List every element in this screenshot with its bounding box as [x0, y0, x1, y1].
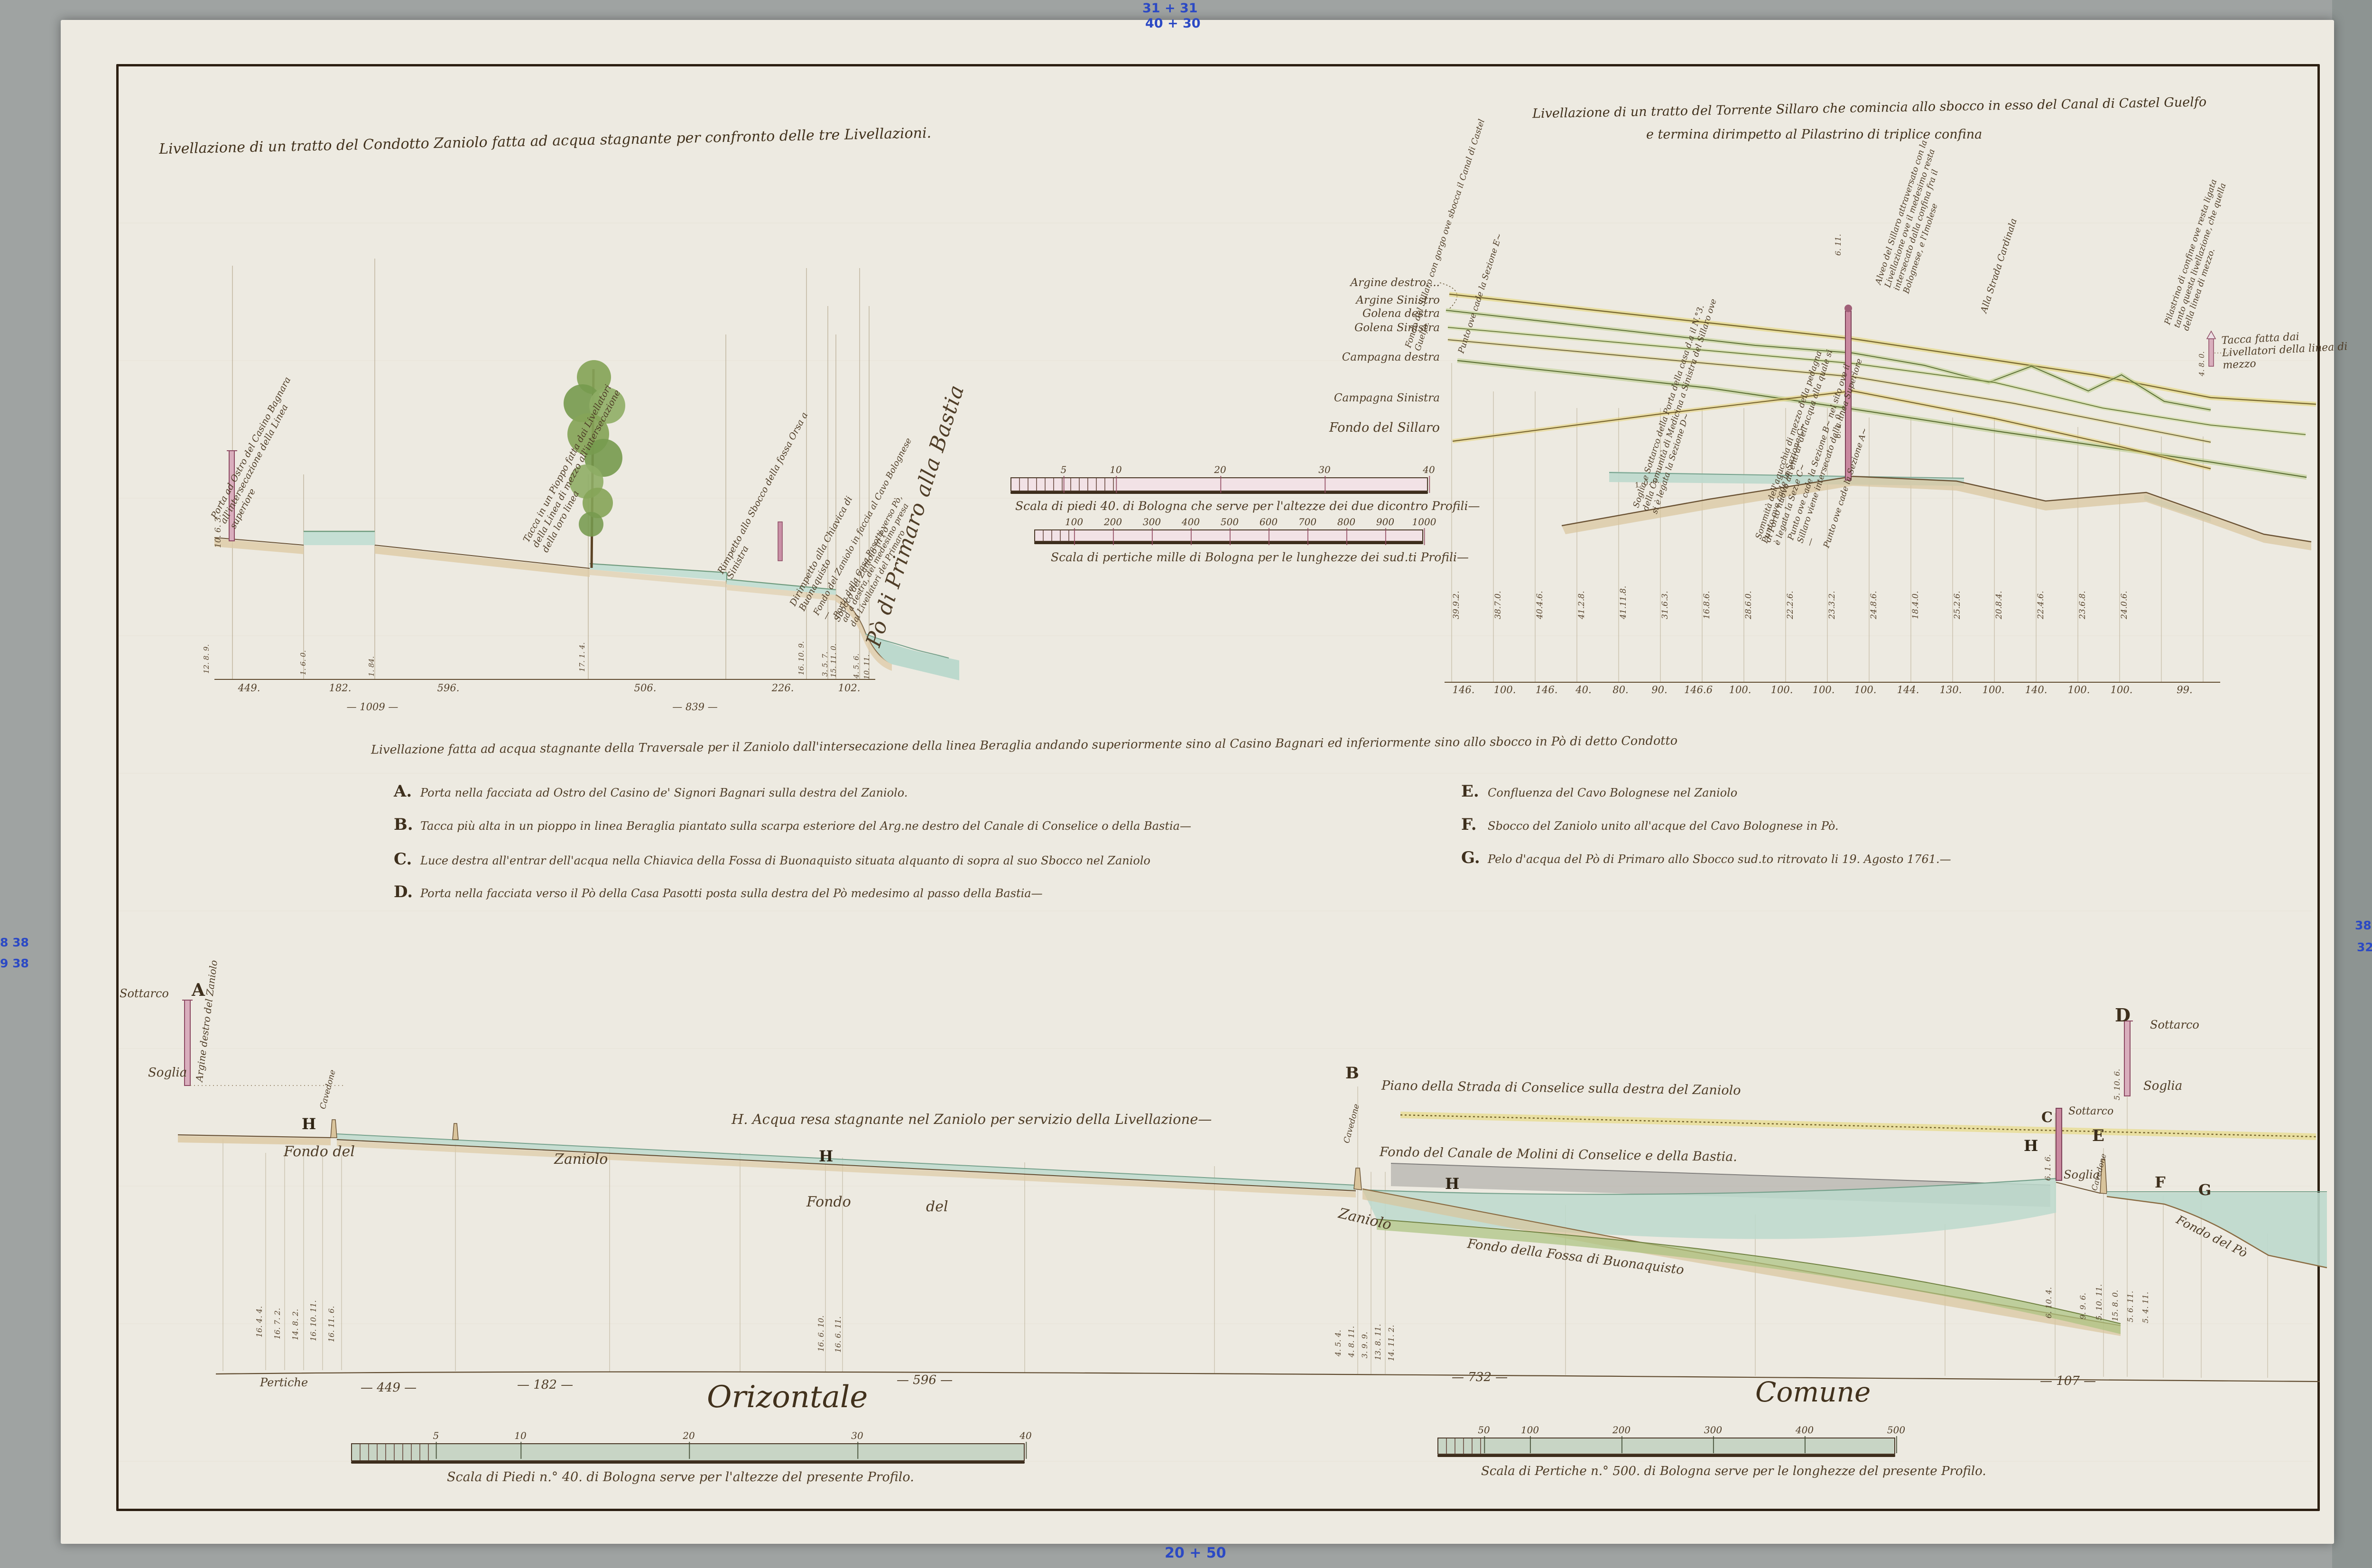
scale-tick: 20 [1214, 464, 1226, 475]
axis-number: 144. [1897, 684, 1919, 696]
scale-pertiche-top-label: Scala di pertiche mille di Bologna per l… [1051, 550, 1469, 565]
scale-tick: 50 [1478, 1424, 1490, 1436]
scale-tick: 40 [1019, 1430, 1031, 1441]
measurement-number: 20.8.4. [1994, 591, 2004, 619]
legend-item-key: D. [394, 882, 420, 901]
scale-tick: 10 [1110, 464, 1121, 475]
measurement-number: 17. 1. 4. [578, 642, 586, 672]
legend-item-key: G. [1461, 848, 1488, 867]
axis-number: 100. [1494, 684, 1516, 696]
tr-profile [1440, 283, 2316, 682]
scale-base-line [1010, 492, 1428, 494]
scale-tick: 800 [1337, 516, 1355, 528]
measurement-number: 15. 8. 0. [2111, 1290, 2120, 1321]
legend-item-text: Tacca più alta in un pioppo in linea Ber… [420, 819, 1191, 833]
measurement-number: 6. 10. 4. [2044, 1287, 2053, 1318]
point-letter-h: H [1445, 1175, 1459, 1193]
axis-number: — 1009 — [347, 701, 398, 713]
measurement-number: 24.8.6. [1869, 591, 1879, 619]
scale-piedi-bottom-label: Scala di Piedi n.° 40. di Bologna serve … [447, 1470, 914, 1485]
measurement-number: 4. 5. 6. [852, 654, 861, 678]
measurement-number: 6. 1. 6. [2043, 1154, 2052, 1181]
scale-tick: 700 [1298, 516, 1316, 528]
blue-mark-left-2: 9 38 [0, 956, 29, 970]
axis-number: 100. [2068, 684, 2090, 696]
scale-tick: 100 [1521, 1424, 1539, 1436]
axis-number: 40. [1575, 684, 1591, 696]
point-letter-g: G [2198, 1181, 2211, 1199]
sottarco-label-c: Sottarco [2068, 1105, 2113, 1118]
point-letter-d: D [2115, 1005, 2131, 1026]
axis-orizontale: Orizontale [707, 1380, 868, 1416]
scale-tick: 100 [1065, 516, 1083, 528]
measurement-number: 41.11.8. [1619, 586, 1628, 619]
axis-number: 146. [1453, 684, 1475, 696]
measurement-number: 16. 4. 4. [255, 1306, 264, 1337]
measurement-number: 5. 4. 11. [2141, 1292, 2150, 1323]
legend-item-key: C. [394, 850, 420, 869]
measurement-number: 3. 9. 9. [1360, 1332, 1369, 1358]
scale-tick: 600 [1260, 516, 1278, 528]
measurement-number: 16. 7. 2. [273, 1308, 282, 1339]
measurement-number: 3. 5. 7. [821, 652, 829, 677]
measurement-number: 4. 8. 0. [2197, 352, 2206, 376]
legend-item-key: A. [394, 782, 420, 801]
measurement-number: 39.9.2. [1452, 591, 1461, 619]
scale-minor-ticks [1438, 1438, 1484, 1454]
soglia-label-c: Soglia [2064, 1168, 2100, 1181]
ground-label: Fondo [806, 1194, 851, 1210]
legend-item: E.Confluenza del Cavo Bolognese nel Zani… [1461, 782, 1737, 801]
measurement-number: 38.7.0. [1493, 591, 1503, 619]
axis-number: 182. [329, 682, 352, 694]
axis-number: 449. [238, 682, 260, 694]
legend-item-text: Confluenza del Cavo Bolognese nel Zaniol… [1488, 786, 1737, 799]
legend-item: G.Pelo d'acqua del Pò di Primaro allo Sb… [1461, 848, 1951, 867]
legend-item-text: Sbocco del Zaniolo unito all'acque del C… [1488, 819, 1839, 833]
measurement-number: 25.2.6. [1953, 591, 1962, 619]
measurement-number: 16. 10. 11. [309, 1300, 318, 1341]
blue-mark-left-1: 8 38 [0, 936, 29, 949]
axis-number: 80. [1612, 684, 1628, 696]
measurement-number: 10. 6. 3. [213, 515, 223, 548]
measurement-number: 23.6.8. [2078, 591, 2087, 619]
point-letter-h: H [302, 1115, 316, 1133]
scale-base-line [351, 1461, 1025, 1464]
scale-minor-ticks [1035, 530, 1074, 541]
axis-number: 596. [437, 682, 460, 694]
scale-piedi-top-label: Scala di piedi 40. di Bologna che serve … [1015, 499, 1480, 513]
profile-drawing-layer [0, 0, 2372, 1568]
blue-mark-bottom: 20 + 50 [1165, 1545, 1226, 1561]
profile-line-label: Campagna Sinistra [1334, 392, 1440, 404]
measurement-number: 18.4.0. [1911, 591, 1920, 619]
axis-number: 140. [2025, 684, 2048, 696]
measurement-number: 5. 6. 11. [2126, 1291, 2135, 1322]
bottom-profile [178, 1000, 2327, 1382]
axis-number: 146.6 [1684, 684, 1713, 696]
legend-item-text: Porta nella facciata ad Ostro del Casino… [420, 786, 908, 799]
measurement-number: 12. 8. 9. [202, 644, 211, 674]
measurement-number: 4. 8. 11. [1347, 1326, 1356, 1357]
measurement-number: 40.4.6. [1535, 591, 1545, 619]
axis-comune: Comune [1755, 1376, 1871, 1408]
legend-item-key: B. [394, 815, 420, 834]
measurement-number: 9. 9. 6. [2078, 1293, 2087, 1319]
scale-pertiche-bottom-label: Scala di Pertiche n.° 500. di Bologna se… [1481, 1464, 1986, 1479]
legend-item: F.Sbocco del Zaniolo unito all'acque del… [1461, 815, 1839, 834]
measurement-number: 14. 11. 2. [1387, 1325, 1396, 1361]
soglia-label-a: Soglia [148, 1066, 187, 1080]
profile-line-label: Campagna destra [1342, 351, 1440, 363]
scale-tick: 1000 [1412, 516, 1436, 528]
axis-number: 99. [2177, 684, 2192, 696]
measurement-number: 10. 11. [862, 655, 871, 679]
photograph-of-manuscript: Livellazione di un tratto del Condotto Z… [0, 0, 2372, 1568]
profile-line-label: Fondo del Sillaro [1329, 420, 1440, 435]
legend-item: B.Tacca più alta in un pioppo in linea B… [394, 815, 1191, 834]
blue-mark-top-2: 40 + 30 [1145, 16, 1201, 31]
h-note: H. Acqua resa stagnante nel Zaniolo per … [732, 1111, 1212, 1127]
point-letter-c: C [2041, 1109, 2053, 1126]
axis-number: — 839 — [672, 701, 717, 713]
axis-number: 100. [1729, 684, 1751, 696]
measurement-number: 16. 6. 10. [816, 1316, 825, 1352]
axis-seg-107: — 107 — [2040, 1374, 2096, 1389]
scale-tick: 400 [1796, 1424, 1814, 1436]
axis-number: 100. [1813, 684, 1835, 696]
soglia-label-d: Soglia [2143, 1079, 2182, 1094]
scale-tick: 5 [433, 1430, 439, 1441]
legend-item-text: Pelo d'acqua del Pò di Primaro allo Sboc… [1488, 853, 1951, 866]
measurement-number: 14. 8. 2. [291, 1309, 300, 1340]
scale-bar-piedi-bottom: 510203040 [351, 1443, 1025, 1461]
scale-tick: 30 [851, 1430, 863, 1441]
measurement-number: 22.4.6. [2036, 591, 2046, 619]
legend-item-text: Luce destra all'entrar dell'acqua nella … [420, 854, 1150, 867]
point-letter-a: A [192, 980, 205, 1000]
scale-tick: 30 [1318, 464, 1330, 475]
point-letter-b: B [1345, 1064, 1359, 1083]
measurement-number: 1. 6. 0. [299, 650, 307, 675]
measurement-number: 31.6.3. [1660, 591, 1670, 619]
axis-seg-182: — 182 — [517, 1378, 573, 1392]
scale-base-line [1437, 1455, 1895, 1457]
point-letter-h: H [819, 1147, 833, 1165]
measurement-number: 4. 5. 4. [1334, 1330, 1343, 1356]
measurement-number: 24.0.6. [2120, 591, 2129, 619]
scale-tick: 900 [1376, 516, 1394, 528]
blue-mark-right-1: 38 [2355, 919, 2372, 932]
scale-tick: 5 [1061, 464, 1067, 475]
legend-item-key: E. [1461, 782, 1488, 801]
measurement-number: 6. 11. [1834, 234, 1843, 256]
measurement-number: 6. 1. 0. [1834, 412, 1843, 438]
ground-label: Fondo del [284, 1143, 355, 1160]
point-letter-e: E [2092, 1126, 2104, 1145]
scale-bar-pertiche-bottom: 50100200300400500 [1437, 1438, 1895, 1455]
measurement-number: 22.2.6. [1786, 591, 1795, 619]
axis-number: 102. [838, 682, 861, 694]
measurement-number: 16. 10. 9. [797, 641, 806, 675]
ground-label: Zaniolo [554, 1151, 608, 1168]
blue-mark-top-1: 31 + 31 [1142, 1, 1198, 16]
scale-tick: 20 [683, 1430, 695, 1441]
measurement-number: 16.8.6. [1702, 591, 1712, 619]
sottarco-label-a: Sottarco [120, 987, 169, 1000]
axis-number: 90. [1651, 684, 1667, 696]
scale-bar-pertiche-top: 1002003004005006007008009001000 [1034, 529, 1423, 542]
axis-number: 226. [772, 682, 794, 694]
scale-tick: 200 [1612, 1424, 1631, 1436]
axis-number: 100. [1771, 684, 1793, 696]
scale-bar-piedi-top: 510203040 [1010, 477, 1428, 492]
scale-minor-ticks [352, 1444, 436, 1460]
scale-tick: 10 [514, 1430, 526, 1441]
axis-number: 130. [1940, 684, 1962, 696]
sottarco-label-d: Sottarco [2150, 1018, 2199, 1031]
axis-number: 100. [1983, 684, 2005, 696]
ground-label: del [926, 1198, 948, 1215]
scale-tick: 40 [1423, 464, 1435, 475]
legend-item: A.Porta nella facciata ad Ostro del Casi… [394, 782, 908, 801]
measurement-number: 15. 11. 0. [829, 643, 838, 677]
axis-number: 100. [2111, 684, 2133, 696]
axis-seg-449: — 449 — [361, 1381, 417, 1395]
measurement-number: 1. 84. [367, 656, 376, 677]
legend-item-key: F. [1461, 815, 1488, 834]
axis-pertiche-label: Pertiche [260, 1376, 308, 1389]
scale-tick: 200 [1104, 516, 1122, 528]
measurement-number: 13. 8. 11. [1373, 1324, 1382, 1360]
axis-seg-732: — 732 — [1452, 1370, 1508, 1385]
legend-item-text: Porta nella facciata verso il Pò della C… [420, 887, 1043, 900]
axis-seg-596: — 596 — [897, 1373, 953, 1388]
legend-item: D.Porta nella facciata verso il Pò della… [394, 882, 1043, 901]
point-letter-f: F [2155, 1174, 2166, 1192]
point-letter-h: H [2024, 1137, 2038, 1155]
measurement-number: 16. 6. 11. [834, 1317, 843, 1353]
scale-tick: 500 [1221, 516, 1239, 528]
blue-mark-right-2: 32 [2357, 940, 2372, 954]
measurement-number: 5. 10. 11. [2094, 1284, 2103, 1320]
scale-tick: 300 [1143, 516, 1161, 528]
axis-number: 100. [1854, 684, 1877, 696]
scale-tick: 300 [1704, 1424, 1722, 1436]
measurement-number: 41.2.8. [1577, 591, 1586, 619]
legend-item: C.Luce destra all'entrar dell'acqua nell… [394, 850, 1150, 869]
measurement-number: 16. 11. 6. [327, 1306, 336, 1342]
scale-tick: 500 [1887, 1424, 1905, 1436]
ruled-guidelines [119, 223, 2313, 1461]
measurement-number: 28.6.0. [1744, 591, 1753, 619]
measurement-number: 5. 10. 6. [2113, 1069, 2122, 1100]
scale-tick: 400 [1182, 516, 1200, 528]
axis-number: 146. [1536, 684, 1558, 696]
station-label-tacca-livellatori: Tacca fatta dai Livellatori della linea … [2221, 328, 2351, 372]
scale-base-line [1034, 542, 1423, 544]
axis-number: 506. [634, 682, 657, 694]
measurement-number: 23.3.2. [1827, 591, 1837, 619]
